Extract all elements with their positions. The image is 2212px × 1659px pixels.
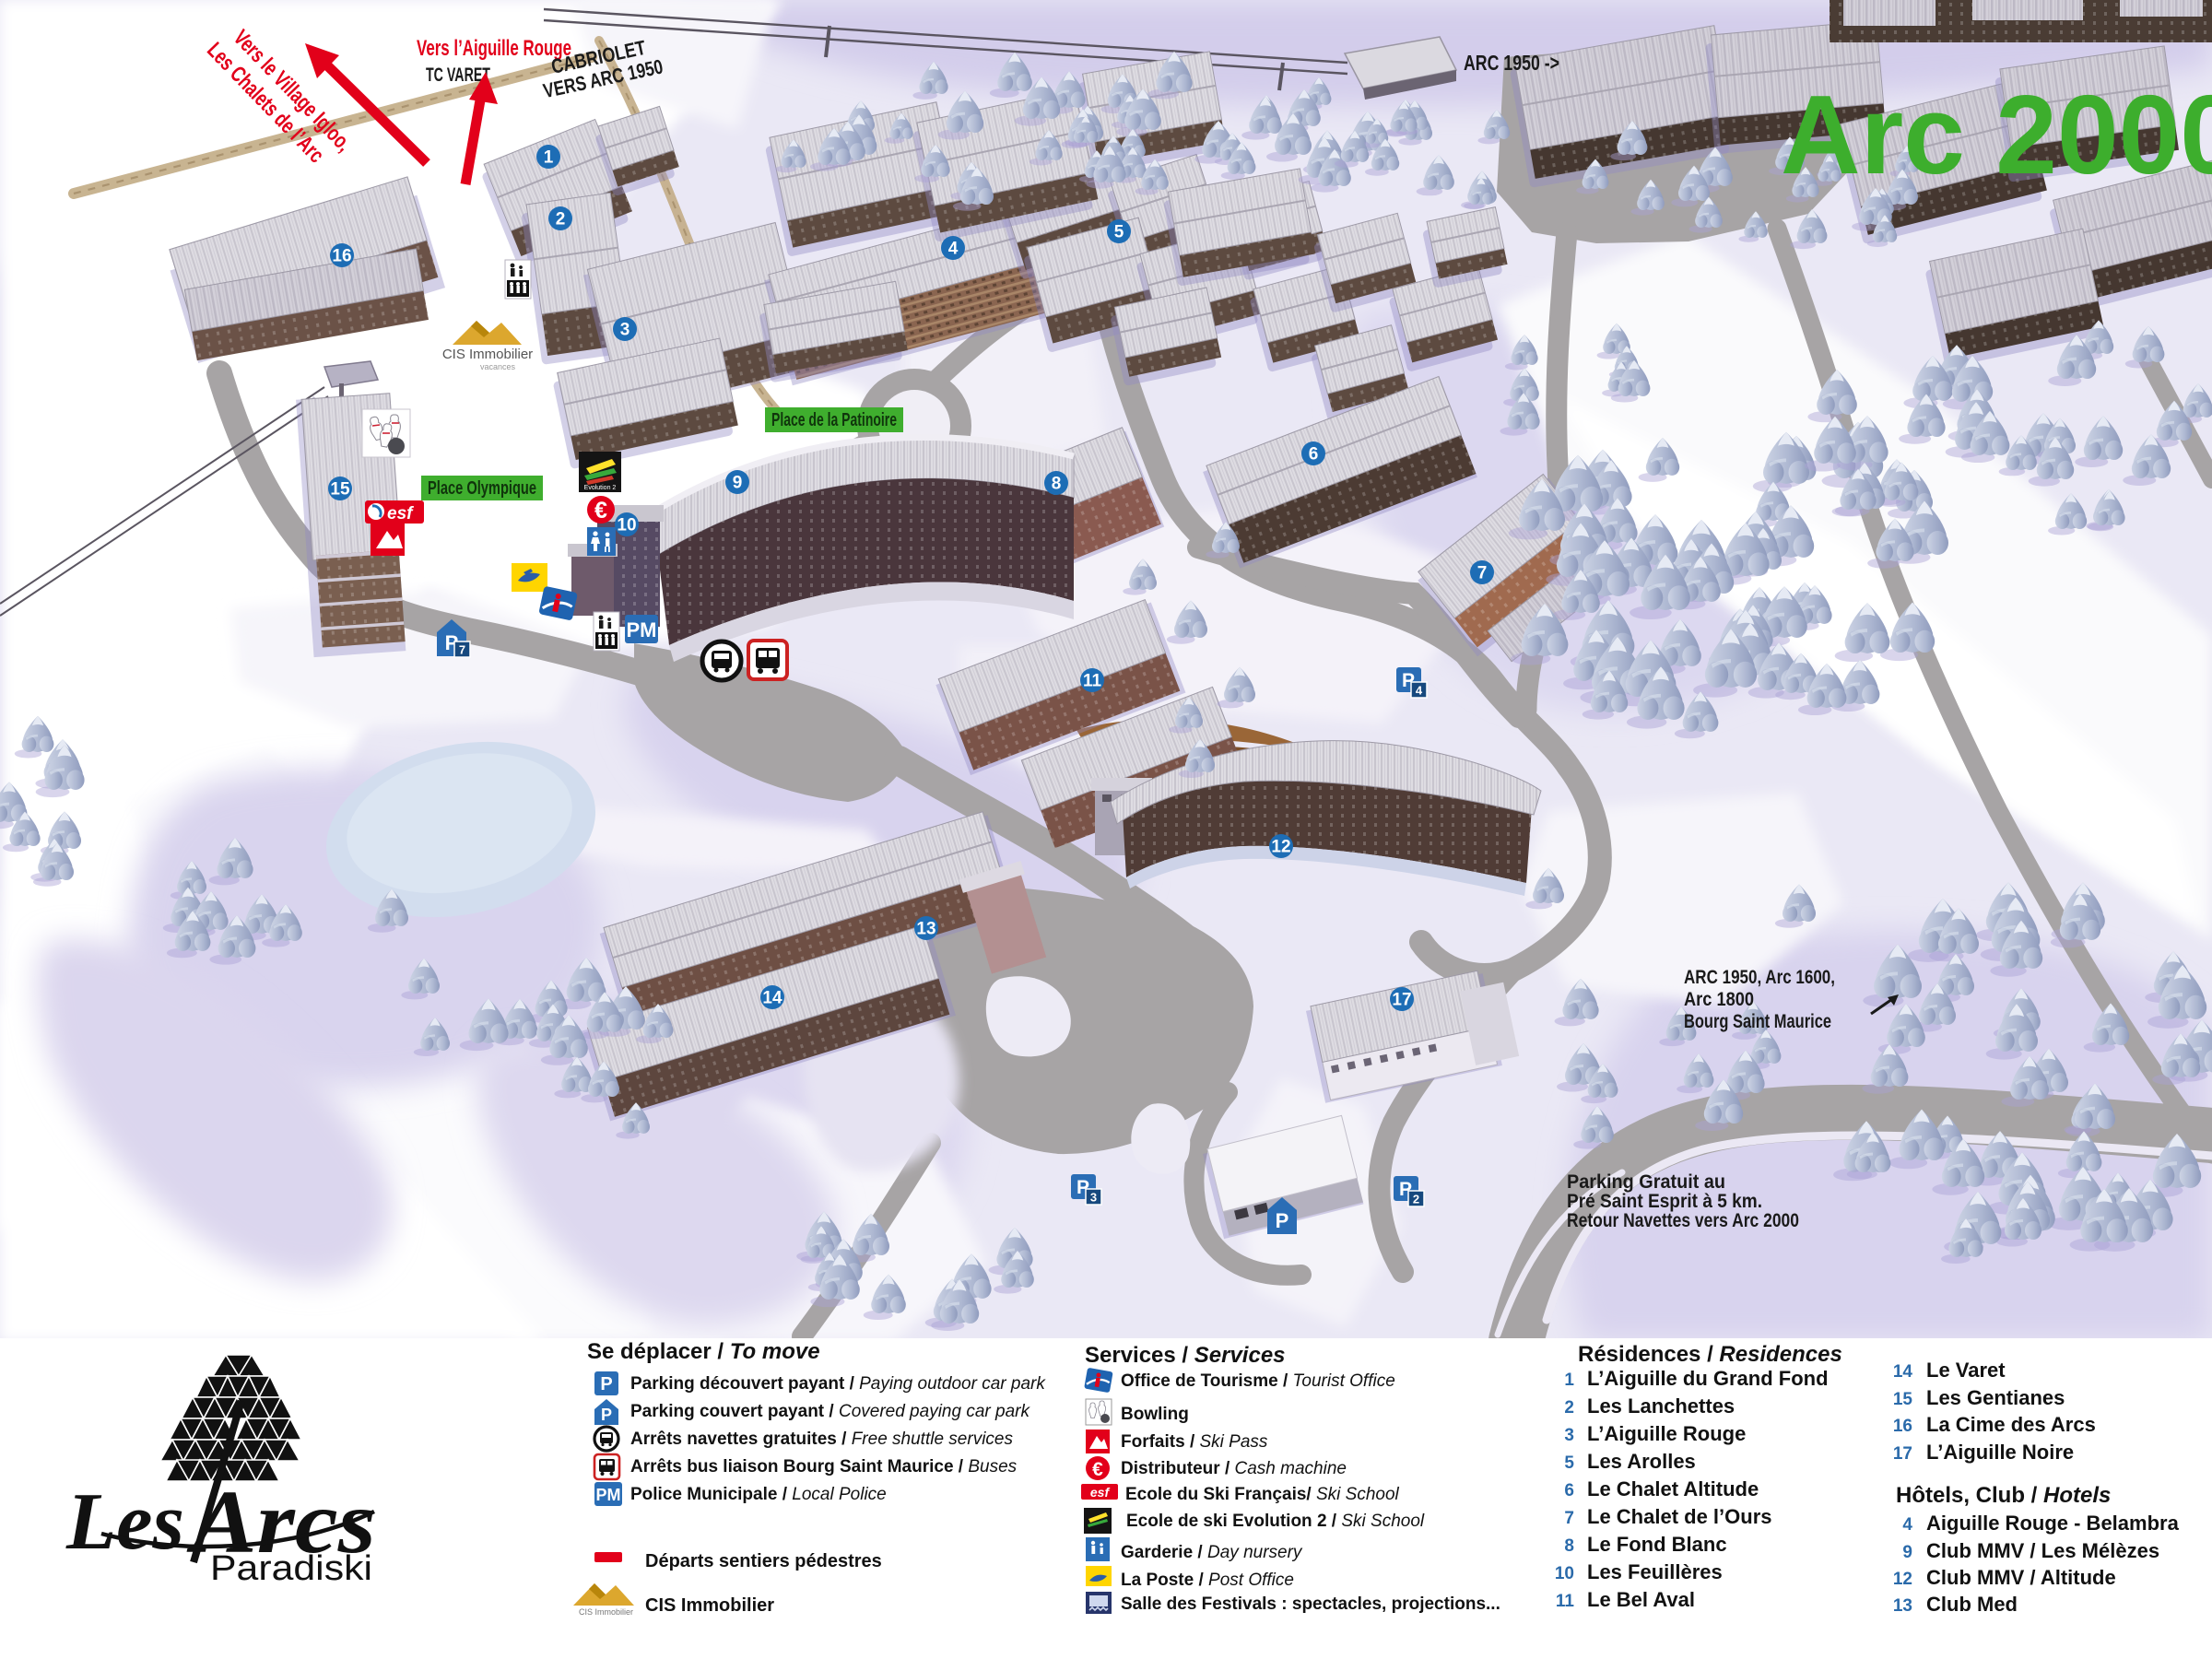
svg-text:Arc 2000: Arc 2000 [1781,72,2212,197]
svg-text:17: 17 [1893,1444,1912,1464]
svg-text:Bowling: Bowling [1121,1405,1189,1424]
svg-text:Bourg Saint Maurice: Bourg Saint Maurice [1684,1011,1831,1032]
svg-text:Salle des Festivals : spectacl: Salle des Festivals : spectacles, projec… [1121,1594,1500,1614]
svg-text:L’Aiguille du Grand Fond: L’Aiguille du Grand Fond [1587,1367,1829,1390]
svg-text:La Cime des Arcs: La Cime des Arcs [1926,1413,2096,1436]
svg-text:Le Varet: Le Varet [1926,1359,2006,1382]
svg-text:esf: esf [1090,1485,1111,1500]
svg-text:Club MMV / Altitude: Club MMV / Altitude [1926,1566,2116,1589]
svg-text:11: 11 [1556,1592,1575,1611]
svg-text:6: 6 [1564,1481,1574,1500]
svg-text:Garderie / Day nursery: Garderie / Day nursery [1121,1543,1303,1562]
svg-text:8: 8 [1564,1536,1574,1556]
svg-text:CIS Immobilier: CIS Immobilier [442,347,533,362]
svg-text:7: 7 [1477,564,1488,583]
svg-text:P: P [601,1406,612,1424]
svg-text:12: 12 [1271,838,1290,857]
svg-text:Club Med: Club Med [1926,1593,2018,1616]
svg-text:Parking Gratuit au: Parking Gratuit au [1567,1171,1725,1193]
svg-text:Evolution 2: Evolution 2 [584,485,617,491]
svg-text:L’Aiguille Noire: L’Aiguille Noire [1926,1441,2074,1464]
svg-text:15: 15 [330,480,350,500]
svg-text:PM: PM [627,618,657,641]
svg-text:10: 10 [617,516,636,535]
svg-text:Le Chalet de l’Ours: Le Chalet de l’Ours [1587,1505,1772,1528]
svg-text:esf: esf [387,504,414,524]
svg-text:4: 4 [948,240,959,259]
svg-text:L’Aiguille Rouge: L’Aiguille Rouge [1587,1422,1746,1445]
svg-text:4: 4 [1902,1515,1912,1535]
svg-text:7: 7 [459,643,465,657]
svg-text:CIS Immobilier: CIS Immobilier [579,1607,633,1617]
svg-text:13: 13 [1893,1596,1912,1616]
svg-text:Départs sentiers pédestres: Départs sentiers pédestres [645,1551,882,1571]
svg-text:5: 5 [1564,1453,1574,1473]
svg-text:Place de la Patinoire: Place de la Patinoire [771,410,897,430]
svg-text:15: 15 [1893,1390,1913,1409]
svg-text:9: 9 [733,474,743,493]
svg-text:14: 14 [1893,1362,1913,1382]
svg-text:4: 4 [1416,684,1423,698]
svg-text:Les Gentianes: Les Gentianes [1926,1386,2065,1409]
svg-text:Les Lanchettes: Les Lanchettes [1587,1394,1735,1418]
svg-text:16: 16 [332,247,351,266]
svg-text:Arc 1800: Arc 1800 [1684,989,1754,1010]
svg-text:1: 1 [544,148,554,168]
svg-text:Pré Saint Esprit à 5 km.: Pré Saint Esprit à 5 km. [1567,1191,1762,1212]
svg-text:Les Feuillères: Les Feuillères [1587,1560,1723,1583]
svg-text:12: 12 [1893,1570,1912,1589]
svg-text:vacances: vacances [480,362,516,371]
svg-text:5: 5 [1114,223,1124,242]
svg-text:Hôtels, Club / Hotels: Hôtels, Club / Hotels [1896,1483,2111,1508]
svg-text:1: 1 [1564,1371,1574,1390]
svg-text:P: P [600,1374,612,1394]
svg-text:2: 2 [1413,1193,1419,1206]
svg-text:Le Chalet Altitude: Le Chalet Altitude [1587,1477,1759,1500]
svg-text:Résidences / Residences: Résidences / Residences [1578,1342,1842,1367]
svg-text:13: 13 [916,920,935,939]
svg-text:Le Fond Blanc: Le Fond Blanc [1587,1533,1727,1556]
svg-text:11: 11 [1083,672,1102,691]
svg-text:La Poste / Post Office: La Poste / Post Office [1121,1571,1294,1590]
svg-text:2: 2 [1564,1398,1574,1418]
svg-text:Parking couvert payant / Cover: Parking couvert payant / Covered paying … [630,1402,1030,1421]
svg-text:3: 3 [1090,1191,1097,1205]
svg-text:17: 17 [1392,991,1411,1010]
svg-text:Ecole de ski Evolution 2 / Ski: Ecole de ski Evolution 2 / Ski School [1126,1512,1425,1531]
svg-text:P: P [1276,1209,1289,1232]
svg-text:Vers l’Aiguille Rouge: Vers l’Aiguille Rouge [417,36,571,61]
svg-text:8: 8 [1052,475,1062,494]
svg-text:ARC 1950, Arc 1600,: ARC 1950, Arc 1600, [1684,967,1835,988]
svg-text:Office de Tourisme / Tourist O: Office de Tourisme / Tourist Office [1121,1371,1395,1391]
svg-text:Aiguille Rouge - Belambra: Aiguille Rouge - Belambra [1926,1512,2180,1535]
svg-text:10: 10 [1555,1564,1574,1583]
svg-text:CIS Immobilier: CIS Immobilier [645,1595,774,1616]
svg-text:3: 3 [1564,1426,1574,1445]
svg-text:Place Olympique: Place Olympique [428,478,536,499]
svg-text:Arrêts navettes gratuites / Fr: Arrêts navettes gratuites / Free shuttle… [630,1430,1013,1449]
svg-text:Parking découvert payant / Pay: Parking découvert payant / Paying outdoo… [630,1374,1046,1394]
svg-text:Les: Les [65,1477,184,1567]
svg-text:Distributeur / Cash machine: Distributeur / Cash machine [1121,1459,1347,1478]
svg-text:Forfaits / Ski Pass: Forfaits / Ski Pass [1121,1432,1268,1452]
svg-text:Les Arolles: Les Arolles [1587,1450,1696,1473]
svg-text:14: 14 [762,989,782,1008]
svg-text:€: € [594,498,607,524]
svg-text:16: 16 [1893,1417,1912,1436]
svg-text:Ecole du Ski Français/ Ski Sch: Ecole du Ski Français/ Ski School [1125,1485,1400,1504]
svg-text:Se déplacer / To move: Se déplacer / To move [587,1339,820,1364]
svg-text:Arrêts bus liaison Bourg Saint: Arrêts bus liaison Bourg Saint Maurice /… [630,1457,1018,1477]
svg-text:2: 2 [556,210,566,229]
svg-text:Le Bel Aval: Le Bel Aval [1587,1588,1695,1611]
svg-text:PM: PM [596,1486,621,1504]
svg-text:Police Municipale / Local Poli: Police Municipale / Local Police [630,1485,887,1504]
svg-text:Services / Services: Services / Services [1085,1343,1286,1368]
svg-text:ARC 1950 ->: ARC 1950 -> [1464,51,1559,75]
svg-text:6: 6 [1309,445,1319,465]
svg-text:Retour Navettes vers Arc 2000: Retour Navettes vers Arc 2000 [1567,1210,1799,1231]
svg-text:9: 9 [1902,1543,1912,1562]
svg-text:Paradiski: Paradiski [210,1549,372,1588]
svg-text:3: 3 [620,321,630,340]
svg-text:€: € [1092,1459,1103,1480]
svg-text:7: 7 [1564,1509,1574,1528]
svg-text:Club MMV / Les Mélèzes: Club MMV / Les Mélèzes [1926,1539,2159,1562]
